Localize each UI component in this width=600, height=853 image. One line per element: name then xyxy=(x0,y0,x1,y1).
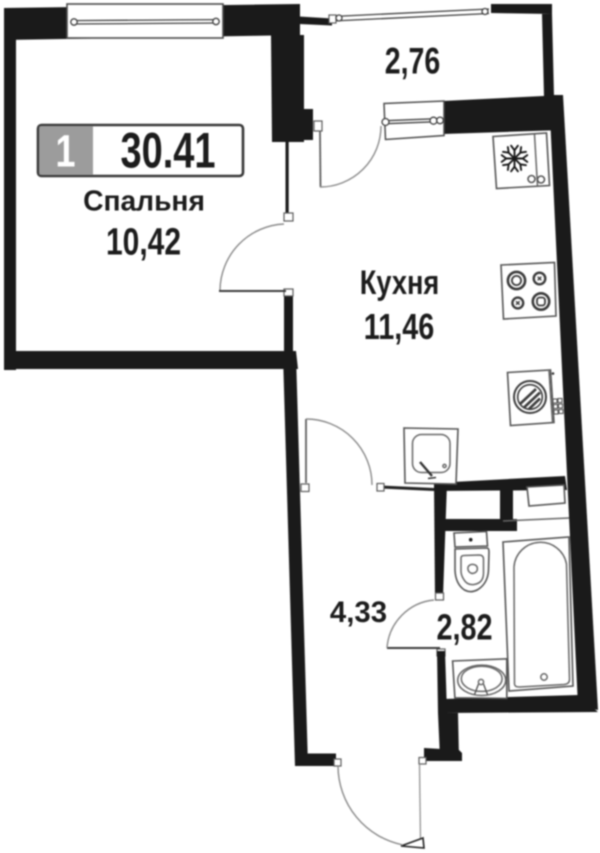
svg-text:2,82: 2,82 xyxy=(436,606,492,647)
svg-text:2,76: 2,76 xyxy=(385,40,440,81)
svg-text:Кухня: Кухня xyxy=(360,263,439,302)
svg-text:Спальня: Спальня xyxy=(83,185,205,217)
svg-text:4,33: 4,33 xyxy=(330,596,387,629)
svg-text:11,46: 11,46 xyxy=(364,306,434,347)
svg-text:30.41: 30.41 xyxy=(120,124,215,179)
svg-text:1: 1 xyxy=(55,126,75,177)
svg-text:10,42: 10,42 xyxy=(106,221,181,263)
